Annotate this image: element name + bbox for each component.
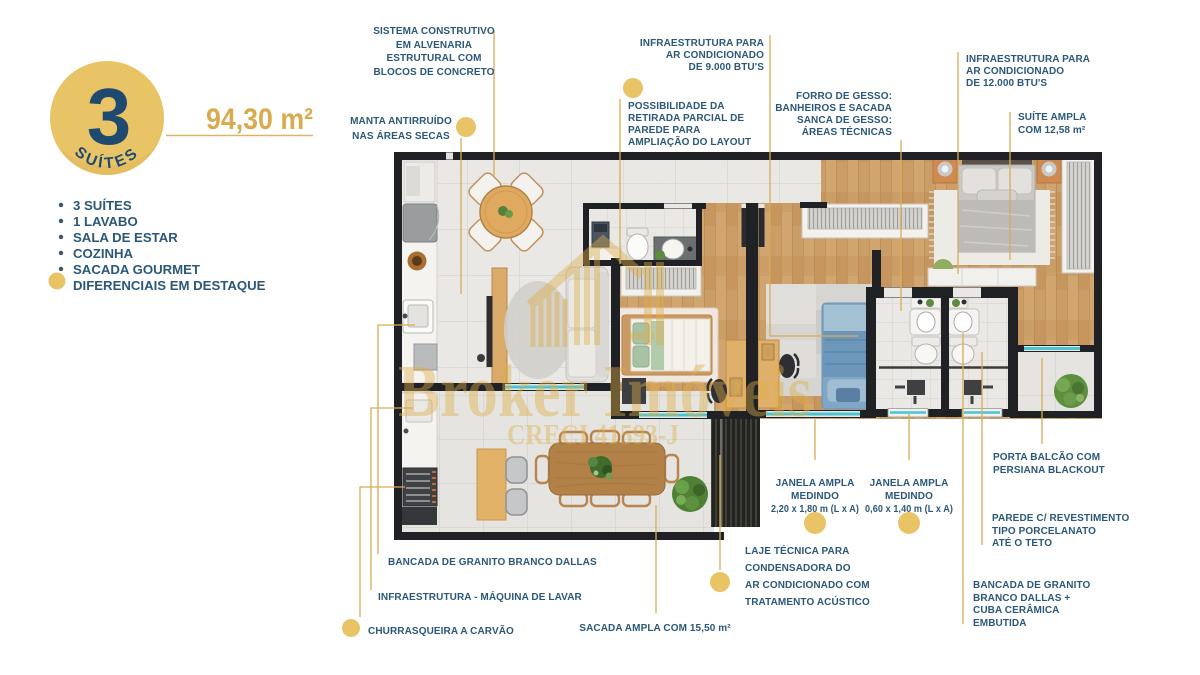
svg-text:BLOCOS DE CONCRETO: BLOCOS DE CONCRETO: [373, 67, 494, 78]
svg-text:NAS ÁREAS SECAS: NAS ÁREAS SECAS: [352, 129, 450, 142]
svg-text:0,60 x 1,40 m (L x A): 0,60 x 1,40 m (L x A): [865, 504, 953, 515]
svg-text:JANELA AMPLA: JANELA AMPLA: [870, 478, 949, 489]
svg-text:AR CONDICIONADO: AR CONDICIONADO: [966, 66, 1064, 77]
svg-text:3: 3: [87, 72, 132, 161]
svg-text:TRATAMENTO ACÚSTICO: TRATAMENTO ACÚSTICO: [745, 595, 870, 608]
svg-text:PERSIANA BLACKOUT: PERSIANA BLACKOUT: [993, 465, 1105, 476]
svg-text:POSSIBILIDADE DA: POSSIBILIDADE DA: [628, 101, 725, 112]
svg-text:LAJE TÉCNICA PARA: LAJE TÉCNICA PARA: [745, 544, 849, 557]
svg-text:DIFERENCIAIS EM DESTAQUE: DIFERENCIAIS EM DESTAQUE: [73, 278, 266, 293]
svg-text:MANTA ANTIRRUÍDO: MANTA ANTIRRUÍDO: [350, 114, 452, 127]
svg-text:BANCADA DE GRANITO BRANCO DALL: BANCADA DE GRANITO BRANCO DALLAS: [388, 557, 597, 568]
svg-text:BRANCO DALLAS +: BRANCO DALLAS +: [973, 593, 1070, 604]
svg-text:CONDENSADORA DO: CONDENSADORA DO: [745, 563, 851, 574]
svg-text:SANCA DE GESSO:: SANCA DE GESSO:: [797, 115, 892, 126]
svg-text:COZINHA: COZINHA: [73, 246, 134, 261]
svg-text:1 LAVABO: 1 LAVABO: [73, 214, 138, 229]
svg-text:ESTRUTURAL COM: ESTRUTURAL COM: [386, 53, 481, 64]
svg-text:CUBA CERÂMICA: CUBA CERÂMICA: [973, 603, 1059, 616]
svg-text:BANCADA DE GRANITO: BANCADA DE GRANITO: [973, 580, 1090, 591]
svg-text:ÁREAS TÉCNICAS: ÁREAS TÉCNICAS: [802, 125, 893, 138]
svg-text:FORRO DE GESSO:: FORRO DE GESSO:: [796, 91, 892, 102]
svg-text:SACADA AMPLA COM 15,50 m²: SACADA AMPLA COM 15,50 m²: [579, 623, 731, 634]
svg-text:94,30 m²: 94,30 m²: [206, 103, 313, 136]
svg-text:PORTA BALCÃO COM: PORTA BALCÃO COM: [993, 450, 1100, 463]
svg-text:PAREDE PARA: PAREDE PARA: [628, 125, 700, 136]
svg-text:RETIRADA PARCIAL DE: RETIRADA PARCIAL DE: [628, 113, 744, 124]
svg-text:DE 9.000 BTU'S: DE 9.000 BTU'S: [689, 62, 765, 73]
svg-text:JANELA AMPLA: JANELA AMPLA: [776, 478, 855, 489]
svg-text:INFRAESTRUTURA PARA: INFRAESTRUTURA PARA: [966, 54, 1090, 65]
svg-text:COM 12,58 m²: COM 12,58 m²: [1018, 125, 1086, 136]
svg-text:DE 12.000 BTU'S: DE 12.000 BTU'S: [966, 78, 1047, 89]
svg-text:MEDINDO: MEDINDO: [885, 491, 933, 502]
svg-text:INFRAESTRUTURA PARA: INFRAESTRUTURA PARA: [640, 38, 764, 49]
svg-text:SACADA GOURMET: SACADA GOURMET: [73, 262, 200, 277]
svg-text:INFRAESTRUTURA - MÁQUINA DE LA: INFRAESTRUTURA - MÁQUINA DE LAVAR: [378, 590, 583, 603]
svg-text:PAREDE C/ REVESTIMENTO: PAREDE C/ REVESTIMENTO: [992, 513, 1130, 524]
svg-text:AMPLIAÇÃO DO LAYOUT: AMPLIAÇÃO DO LAYOUT: [628, 135, 751, 148]
svg-text:CHURRASQUEIRA A CARVÃO: CHURRASQUEIRA A CARVÃO: [368, 624, 514, 637]
svg-text:CRECI 41593-J: CRECI 41593-J: [507, 419, 679, 451]
svg-text:SISTEMA CONSTRUTIVO: SISTEMA CONSTRUTIVO: [373, 26, 495, 37]
svg-text:EMBUTIDA: EMBUTIDA: [973, 618, 1027, 629]
svg-text:TIPO PORCELANATO: TIPO PORCELANATO: [992, 526, 1096, 537]
svg-text:BANHEIROS E SACADA: BANHEIROS E SACADA: [775, 103, 892, 114]
svg-text:AR CONDICIONADO: AR CONDICIONADO: [666, 50, 764, 61]
svg-text:AR CONDICIONADO COM: AR CONDICIONADO COM: [745, 580, 870, 591]
svg-text:ATÉ O TETO: ATÉ O TETO: [992, 536, 1052, 549]
svg-text:EM ALVENARIA: EM ALVENARIA: [396, 40, 472, 51]
svg-text:SUÍTE AMPLA: SUÍTE AMPLA: [1018, 110, 1087, 123]
svg-text:3 SUÍTES: 3 SUÍTES: [73, 198, 132, 213]
svg-text:SALA DE ESTAR: SALA DE ESTAR: [73, 230, 178, 245]
svg-text:2,20 x 1,80 m (L x A): 2,20 x 1,80 m (L x A): [771, 504, 859, 515]
svg-text:MEDINDO: MEDINDO: [791, 491, 839, 502]
